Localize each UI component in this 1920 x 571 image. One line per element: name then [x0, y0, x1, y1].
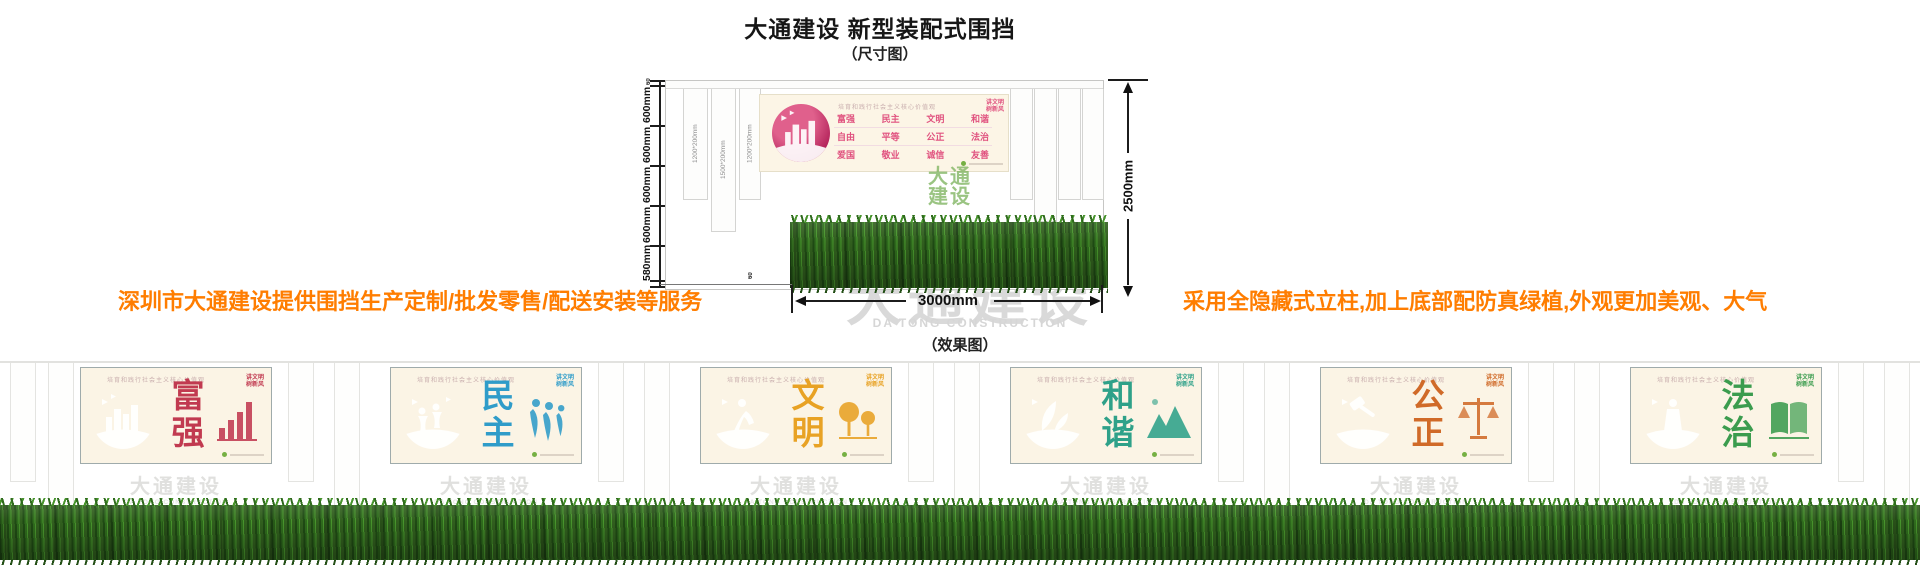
fence-post-slot: [954, 363, 980, 508]
post-slot: 1200*200mm: [683, 89, 708, 200]
panel-word: 和谐: [1095, 377, 1141, 451]
tiny-text-bar: [969, 163, 1003, 165]
fence-post-slot: [1264, 363, 1290, 508]
fence-post-slot: [1884, 363, 1910, 508]
dim-end-bar: [791, 285, 793, 313]
dim-cap: [1108, 79, 1148, 81]
green-logo-dot: [842, 452, 847, 457]
fence-post-slot: [1218, 363, 1244, 482]
green-logo-dot: [1152, 452, 1157, 457]
fence-post-slot: [10, 363, 36, 482]
tiny-text-bar: [850, 454, 884, 456]
civility-badge: 讲文明树新风: [556, 375, 574, 389]
arrow-left: [795, 296, 806, 306]
dim-end-bar: [1101, 285, 1103, 313]
city-skyline-art: [772, 104, 830, 162]
paper-cut-circle-art: [1022, 387, 1084, 449]
fence-post-slot: [1838, 363, 1864, 482]
fence-post-slot: [908, 363, 934, 482]
panel-banner: 培育和践行社会主义核心价值观 讲文明树新风 民主: [390, 367, 582, 464]
gavel-art: [1332, 387, 1394, 449]
green-logo-dot: [1772, 452, 1777, 457]
trees-icon: [837, 394, 881, 442]
dim-line: [1127, 219, 1129, 285]
post-slot: [1010, 89, 1033, 200]
dim-line: [1127, 93, 1129, 153]
values-row: 富强民主文明和谐: [834, 110, 992, 128]
fence-post-slot: [598, 363, 624, 482]
dim-line: [994, 300, 1090, 302]
panel-word: 民主: [475, 377, 521, 451]
post-slot: [1082, 89, 1104, 200]
green-logo-dot: [222, 452, 227, 457]
panel-word: 公正: [1405, 377, 1451, 451]
panel-banner: 培育和践行社会主义核心价值观 讲文明树新风 和谐: [1010, 367, 1202, 464]
green-logo-dot: [1462, 452, 1467, 457]
company-mark: [842, 452, 884, 457]
post-slot: 1500*200mm: [711, 89, 736, 232]
dim-line: [806, 300, 906, 302]
panel-banner: 培育和践行社会主义核心价值观 讲文明树新风 公正: [1320, 367, 1512, 464]
company-mark: [532, 452, 574, 457]
people-icon: [527, 394, 571, 442]
unit-width-label: 3000mm: [902, 292, 994, 309]
arrow-up: [1123, 82, 1133, 93]
ground-line: [660, 284, 792, 285]
company-mark: [222, 452, 264, 457]
paper-cut-circle-art: [1642, 387, 1704, 449]
poster-canvas: 大通建设 新型装配式围挡 （尺寸图） 大通建设 DA TONG CONSTRUC…: [0, 0, 1920, 560]
offset-label-60: 60: [746, 270, 756, 282]
fence-post-slot: [1574, 363, 1600, 508]
paper-cut-circle-art: [712, 387, 774, 449]
artificial-hedge: [0, 505, 1920, 560]
arrow-right: [1090, 296, 1101, 306]
fence-post-slot: [334, 363, 360, 508]
panel-word: 文明: [785, 377, 831, 451]
post-size-label: 1500*200mm: [712, 89, 735, 231]
diagram-hedge: [790, 222, 1108, 288]
green-brand-watermark: 大通 建设: [928, 167, 972, 207]
paper-cut-circle-art: [772, 104, 830, 162]
panel-banner: 培育和践行社会主义核心价值观 讲文明树新风 法治: [1630, 367, 1822, 464]
company-mark: [1152, 452, 1194, 457]
core-values-grid: 富强民主文明和谐 自由平等公正法治 爱国敬业诚信友善: [834, 110, 992, 163]
tiny-text-bar: [1160, 454, 1194, 456]
post-slot: [1034, 89, 1057, 222]
fence-post-slot: [644, 363, 670, 508]
green-logo-dot: [532, 452, 537, 457]
ruler-label-600: 600mm: [638, 85, 656, 125]
fence-top-rail: [666, 81, 1103, 89]
law-book-icon: [1767, 394, 1811, 442]
tiny-text-bar: [1780, 454, 1814, 456]
company-mark: [1772, 452, 1814, 457]
leaves-art: [1022, 387, 1084, 449]
dimension-diagram: 60 600mm 600mm 600mm 600mm 580mm 1200*20…: [0, 0, 1920, 360]
tiny-text-bar: [1470, 454, 1504, 456]
fence-post-slot: [1528, 363, 1554, 482]
panel-banner: 培育和践行社会主义核心价值观 讲文明树新风 文明: [700, 367, 892, 464]
panel-word: 富强: [165, 377, 211, 451]
city-skyline-art: [92, 387, 154, 449]
banner-preview: 培育和践行社会主义核心价值观 讲文明 树新风 富强民主文明和谐 自由平等公正法治…: [759, 94, 1009, 172]
fence-post-slot: [288, 363, 314, 482]
civility-badge: 讲文明树新风: [866, 375, 884, 389]
post-slot: [1058, 89, 1081, 200]
post-size-label: 1200*200mm: [740, 89, 760, 199]
post-slot: 1200*200mm: [739, 89, 761, 200]
civility-badge: 讲文明树新风: [1486, 375, 1504, 389]
ruler-label-580: 580mm: [638, 245, 656, 280]
civility-badge: 讲文明树新风: [246, 375, 264, 389]
mountains-icon: [1147, 394, 1191, 442]
tiny-text-bar: [540, 454, 574, 456]
panel-word: 法治: [1715, 377, 1761, 451]
people-globe-art: [402, 387, 464, 449]
company-mark: [1462, 452, 1504, 457]
paper-cut-circle-art: [402, 387, 464, 449]
ruler-label-600: 600mm: [638, 125, 656, 165]
panel-banner: 培育和践行社会主义核心价值观 讲文明树新风 富强: [80, 367, 272, 464]
arrow-down: [1123, 286, 1133, 297]
civility-badge: 讲文明树新风: [1796, 375, 1814, 389]
civility-badge: 讲文明树新风: [1176, 375, 1194, 389]
ruler-label-600: 600mm: [638, 205, 656, 245]
values-row: 自由平等公正法治: [834, 128, 992, 146]
paper-cut-circle-art: [92, 387, 154, 449]
scales-icon: [1457, 394, 1501, 442]
ruler-label-600: 600mm: [638, 165, 656, 205]
total-height-label: 2500mm: [1119, 155, 1137, 217]
statue-art: [1642, 387, 1704, 449]
bar-chart-icon: [217, 394, 261, 442]
ruler-line: [659, 80, 661, 288]
post-size-label: 1200*200mm: [684, 89, 707, 199]
fence-post-slot: [48, 363, 74, 508]
runner-art: [712, 387, 774, 449]
tiny-text-bar: [230, 454, 264, 456]
paper-cut-circle-art: [1332, 387, 1394, 449]
effect-caption: （效果图）: [720, 334, 1200, 355]
